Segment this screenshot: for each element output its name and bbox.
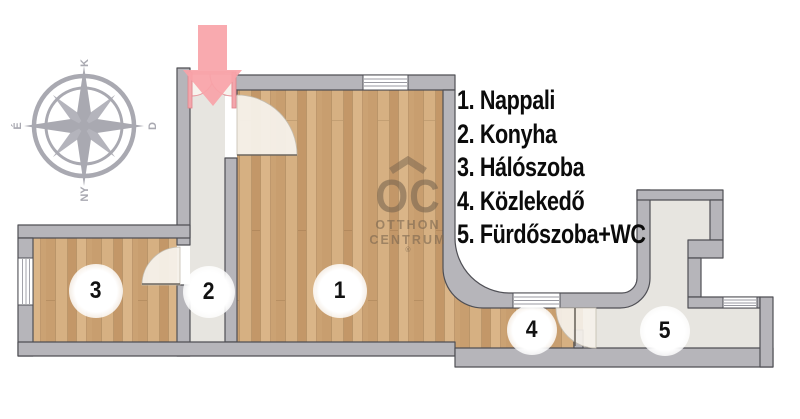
room-badge-nappali: 1 — [313, 264, 367, 318]
window-icon — [723, 297, 757, 308]
compass-rose-icon: K D NY É — [11, 59, 159, 202]
wall-bottom-right — [455, 348, 773, 367]
wall-bottom-left — [18, 342, 455, 356]
compass-label-e: É — [11, 122, 24, 129]
logo-otthon: OTTHON — [366, 217, 450, 232]
legend: 1. Nappali 2. Konyha 3. Hálószoba 4. Köz… — [457, 84, 693, 252]
wall-furdo-right-upper — [710, 200, 723, 240]
legend-item-furdoszoba: 5. Fürdőszoba+WC — [457, 218, 646, 252]
wall-furdo-right — [760, 297, 773, 367]
wall-top — [225, 75, 455, 90]
wall-haloszoba-top — [18, 225, 190, 238]
logo-centrum: CENTRUM — [366, 232, 450, 247]
room-number: 2 — [203, 278, 215, 306]
legend-item-kozlekedo: 4. Közlekedő — [457, 185, 646, 219]
compass-label-ny: NY — [79, 186, 91, 202]
room-number: 4 — [526, 316, 538, 344]
room-badge-kozlekedo: 4 — [507, 305, 557, 355]
compass-label-k: K — [79, 59, 91, 67]
entrance — [183, 25, 242, 108]
floorplan-image: K D NY É OC OTTHON CENTRUM ® 1. Nappali … — [0, 0, 800, 419]
room-number: 1 — [334, 277, 346, 305]
room-badge-furdoszoba: 5 — [640, 306, 690, 356]
logo-initials: OC — [368, 175, 449, 217]
wall-nappali-left — [225, 158, 237, 342]
room-number: 5 — [659, 317, 671, 345]
window-icon — [363, 75, 408, 90]
compass-label-d: D — [147, 122, 159, 130]
window-icon — [18, 258, 33, 305]
wall-furdo-notch-left — [688, 258, 701, 297]
logo-registered-mark: ® — [364, 247, 452, 255]
room-number: 3 — [90, 277, 102, 305]
room-badge-haloszoba: 3 — [69, 264, 123, 318]
otthon-centrum-logo: OC OTTHON CENTRUM ® — [364, 156, 452, 255]
room-badge-konyha: 2 — [183, 266, 235, 318]
legend-item-nappali: 1. Nappali — [457, 84, 646, 118]
legend-item-haloszoba: 3. Hálószoba — [457, 151, 646, 185]
wall-furdo-notch-top — [688, 240, 723, 258]
legend-item-konyha: 2. Konyha — [457, 118, 646, 152]
